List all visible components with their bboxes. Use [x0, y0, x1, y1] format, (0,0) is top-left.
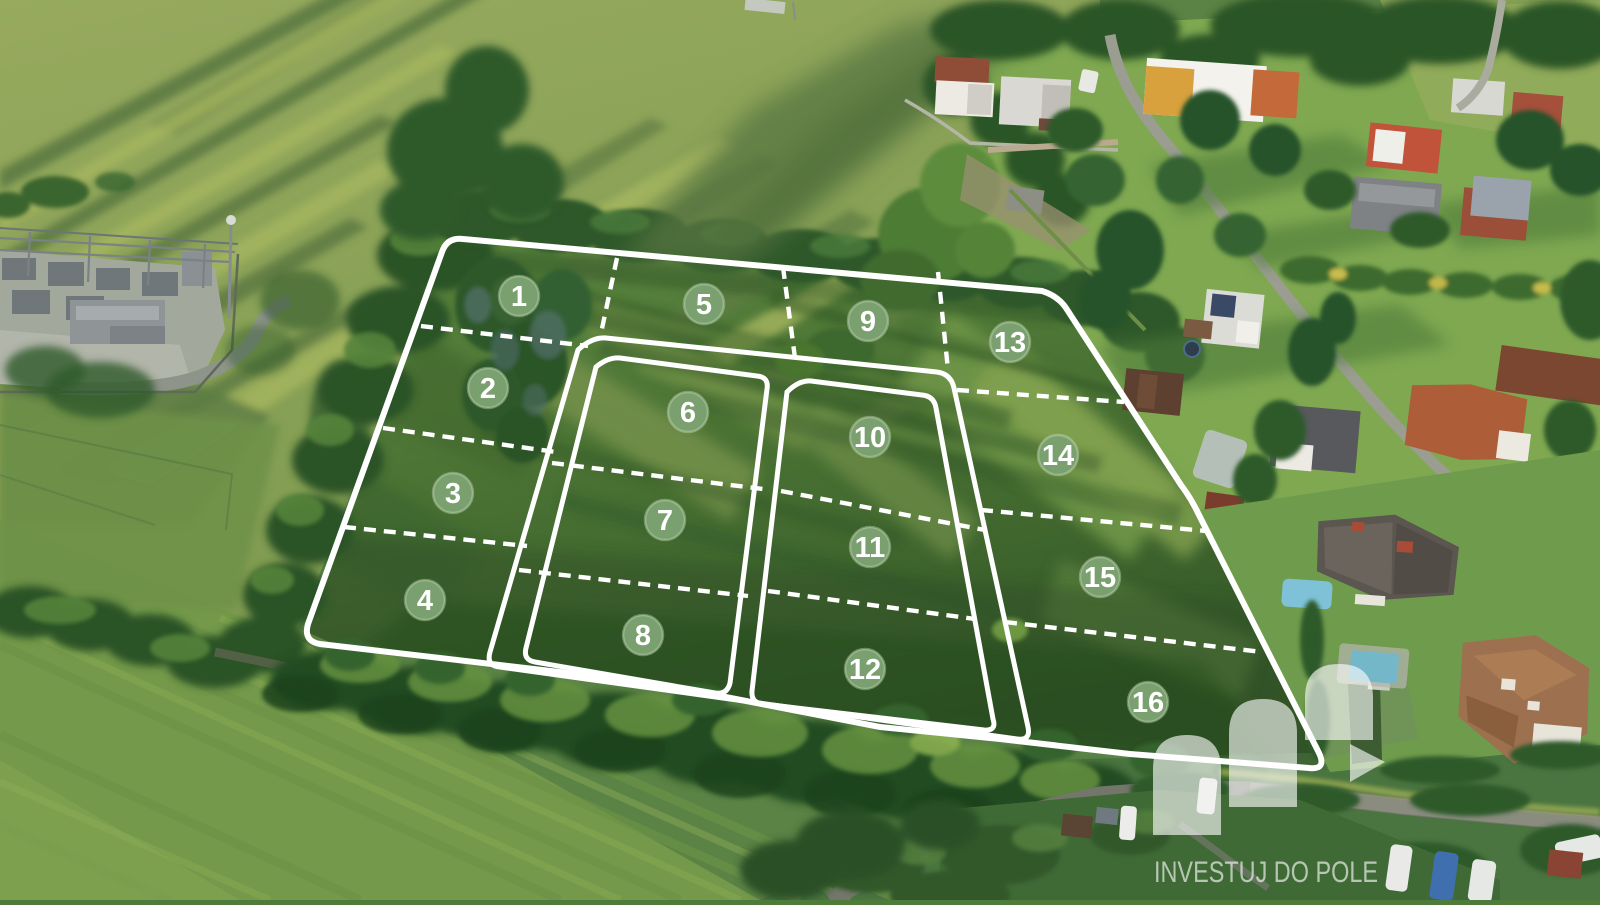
svg-text:13: 13 [994, 327, 1026, 359]
svg-text:14: 14 [1042, 440, 1074, 472]
svg-text:15: 15 [1084, 562, 1116, 594]
svg-text:2: 2 [480, 373, 496, 405]
svg-text:5: 5 [696, 289, 712, 321]
svg-text:INVESTUJ DO POLE: INVESTUJ DO POLE [1154, 856, 1378, 889]
svg-text:4: 4 [417, 585, 433, 617]
svg-text:16: 16 [1132, 687, 1164, 719]
svg-text:9: 9 [860, 306, 876, 338]
svg-text:1: 1 [511, 281, 527, 313]
svg-text:11: 11 [855, 532, 886, 564]
svg-text:3: 3 [445, 478, 461, 510]
svg-text:8: 8 [635, 620, 651, 652]
svg-text:12: 12 [849, 654, 881, 686]
svg-text:10: 10 [854, 422, 886, 454]
svg-text:7: 7 [657, 505, 673, 537]
svg-text:6: 6 [680, 397, 696, 429]
